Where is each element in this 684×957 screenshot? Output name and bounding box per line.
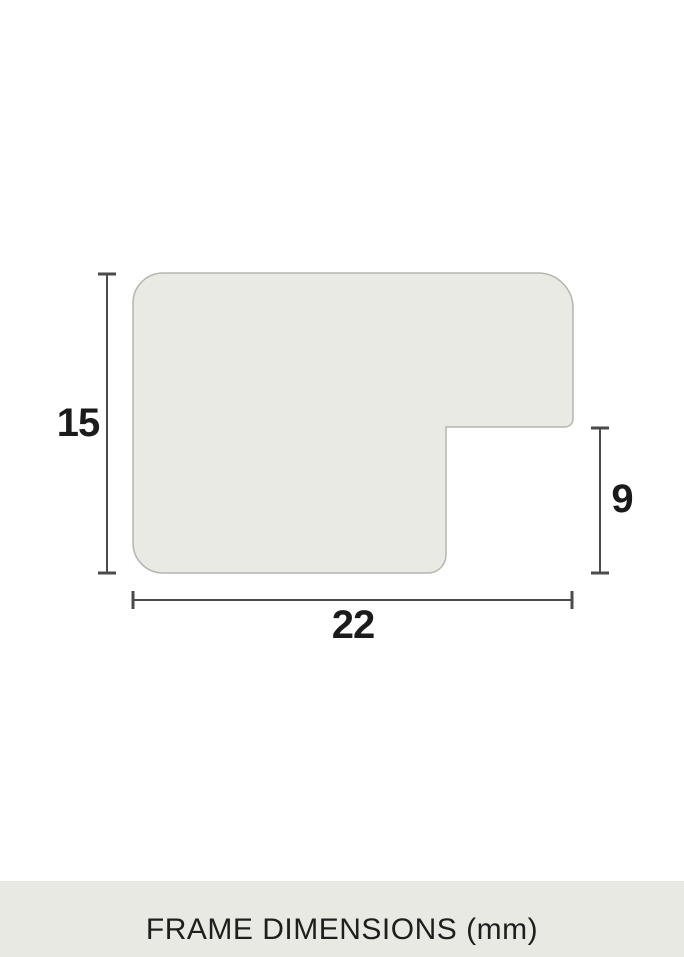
frame-dimensions-diagram: 15 9 22 FRAME DIMENSIONS (mm) [0,0,684,957]
width-dimension-label: 22 [332,605,375,645]
footer-caption: FRAME DIMENSIONS (mm) [146,913,538,947]
profile-diagram-svg [0,0,684,881]
frame-profile-path [133,273,573,573]
height-dimension-label: 15 [57,403,100,443]
footer-bar: FRAME DIMENSIONS (mm) [0,881,684,957]
frame-profile-shape [133,273,573,573]
rabbet-dimension-label: 9 [611,479,632,519]
